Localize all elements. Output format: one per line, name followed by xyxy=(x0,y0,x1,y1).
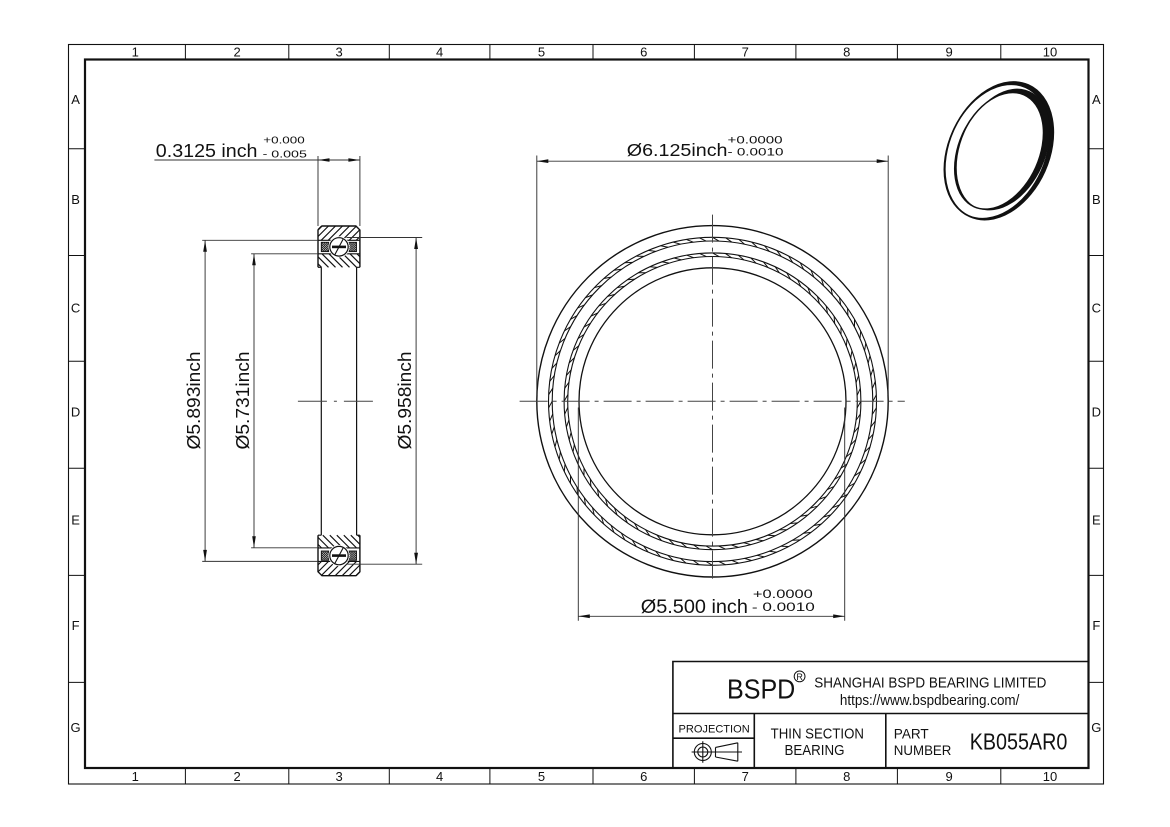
svg-text:A: A xyxy=(1092,92,1101,107)
svg-text:- 0.005: - 0.005 xyxy=(263,149,307,161)
svg-text:E: E xyxy=(1092,513,1101,528)
svg-text:BSPD: BSPD xyxy=(727,673,795,704)
svg-text:F: F xyxy=(1092,618,1100,633)
svg-text:1: 1 xyxy=(132,769,139,784)
svg-text:THIN SECTION: THIN SECTION xyxy=(771,726,864,743)
svg-text:C: C xyxy=(71,301,80,316)
svg-text:https://www.bspdbearing.com/: https://www.bspdbearing.com/ xyxy=(840,692,1020,709)
svg-text:+0.0000: +0.0000 xyxy=(728,135,783,147)
svg-text:Ø5.958inch: Ø5.958inch xyxy=(395,352,415,450)
svg-text:10: 10 xyxy=(1043,769,1057,784)
svg-text:- 0.0010: - 0.0010 xyxy=(728,146,784,158)
svg-text:7: 7 xyxy=(742,769,749,784)
svg-text:3: 3 xyxy=(335,45,342,60)
svg-text:5: 5 xyxy=(538,769,545,784)
svg-text:C: C xyxy=(1092,301,1101,316)
svg-text:7: 7 xyxy=(742,45,749,60)
svg-text:4: 4 xyxy=(436,45,443,60)
svg-text:R: R xyxy=(796,672,803,682)
svg-text:8: 8 xyxy=(843,769,850,784)
svg-text:D: D xyxy=(1092,405,1101,420)
svg-text:9: 9 xyxy=(945,769,952,784)
svg-text:D: D xyxy=(71,405,80,420)
svg-text:10: 10 xyxy=(1043,45,1057,60)
svg-text:B: B xyxy=(1092,192,1101,207)
svg-text:+0.000: +0.000 xyxy=(263,134,305,146)
svg-text:G: G xyxy=(71,720,81,735)
svg-text:G: G xyxy=(1091,720,1101,735)
svg-text:PROJECTION: PROJECTION xyxy=(679,723,750,735)
svg-text:4: 4 xyxy=(436,769,443,784)
svg-text:A: A xyxy=(71,92,80,107)
svg-text:E: E xyxy=(71,513,80,528)
svg-text:- 0.0010: - 0.0010 xyxy=(752,602,815,614)
svg-text:2: 2 xyxy=(233,769,240,784)
svg-text:KB055AR0: KB055AR0 xyxy=(970,729,1068,755)
svg-text:6: 6 xyxy=(640,45,647,60)
svg-text:Ø5.500 inch: Ø5.500 inch xyxy=(641,597,748,618)
svg-text:Ø5.731inch: Ø5.731inch xyxy=(233,352,253,450)
svg-text:PART: PART xyxy=(894,725,929,741)
svg-text:SHANGHAI BSPD BEARING LIMITED: SHANGHAI BSPD BEARING LIMITED xyxy=(814,675,1046,692)
svg-text:3: 3 xyxy=(335,769,342,784)
svg-text:+0.0000: +0.0000 xyxy=(753,589,813,601)
svg-text:1: 1 xyxy=(132,45,139,60)
svg-text:2: 2 xyxy=(233,45,240,60)
svg-text:0.3125 inch: 0.3125 inch xyxy=(156,141,258,161)
svg-text:5: 5 xyxy=(538,45,545,60)
svg-text:Ø6.125inch: Ø6.125inch xyxy=(627,140,728,160)
svg-text:8: 8 xyxy=(843,45,850,60)
svg-text:6: 6 xyxy=(640,769,647,784)
svg-text:BEARING: BEARING xyxy=(784,742,844,759)
svg-text:Ø5.893inch: Ø5.893inch xyxy=(184,352,204,450)
svg-text:NUMBER: NUMBER xyxy=(894,742,952,758)
svg-text:F: F xyxy=(72,618,80,633)
svg-text:B: B xyxy=(71,192,80,207)
svg-text:9: 9 xyxy=(945,45,952,60)
